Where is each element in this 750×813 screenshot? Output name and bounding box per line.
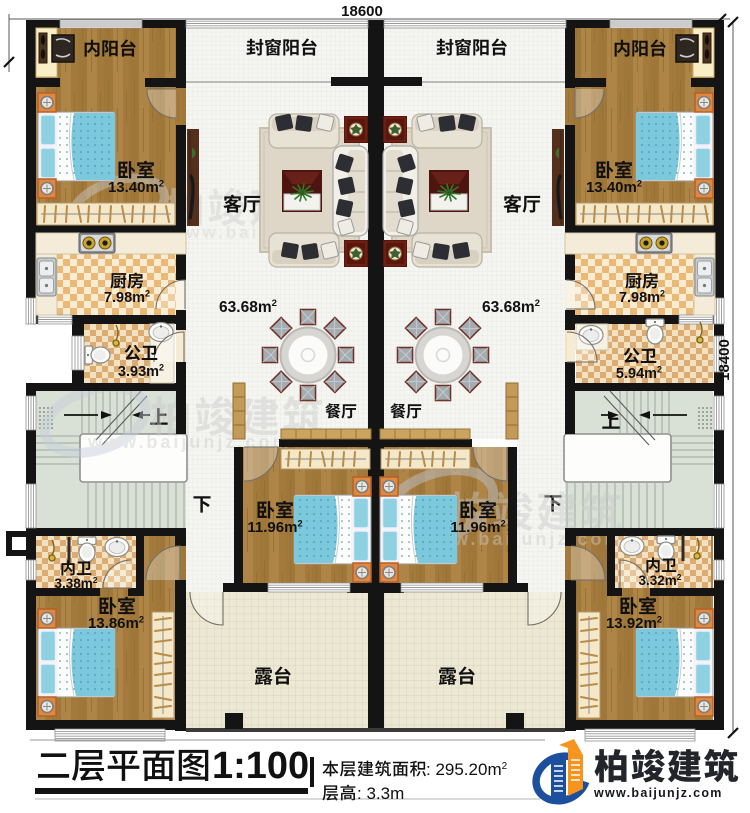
svg-text:63.68m2: 63.68m2 xyxy=(219,298,277,316)
svg-text:www.baijunjz.com: www.baijunjz.com xyxy=(593,786,723,800)
svg-text:3.32m2: 3.32m2 xyxy=(639,572,682,588)
svg-text:18600: 18600 xyxy=(341,3,383,20)
svg-text:1:100: 1:100 xyxy=(212,745,309,787)
svg-text:13.92m2: 13.92m2 xyxy=(606,614,662,632)
svg-text:11.96m2: 11.96m2 xyxy=(247,518,302,536)
svg-text:13.40m2: 13.40m2 xyxy=(586,178,642,196)
svg-text:63.68m2: 63.68m2 xyxy=(482,298,540,316)
svg-text:7.98m2: 7.98m2 xyxy=(104,288,150,306)
svg-text:13.40m2: 13.40m2 xyxy=(108,178,164,196)
svg-text:11.96m2: 11.96m2 xyxy=(450,518,505,536)
svg-text:18400: 18400 xyxy=(716,339,733,381)
svg-text:3.38m2: 3.38m2 xyxy=(55,575,98,591)
svg-text:7.98m2: 7.98m2 xyxy=(619,288,665,306)
svg-text:5.94m2: 5.94m2 xyxy=(616,364,662,382)
svg-text:3.93m2: 3.93m2 xyxy=(118,362,164,380)
svg-text:: 3.3m: : 3.3m xyxy=(357,784,404,803)
svg-text:: 295.20m2: : 295.20m2 xyxy=(426,760,508,779)
svg-text:13.86m2: 13.86m2 xyxy=(88,614,144,632)
